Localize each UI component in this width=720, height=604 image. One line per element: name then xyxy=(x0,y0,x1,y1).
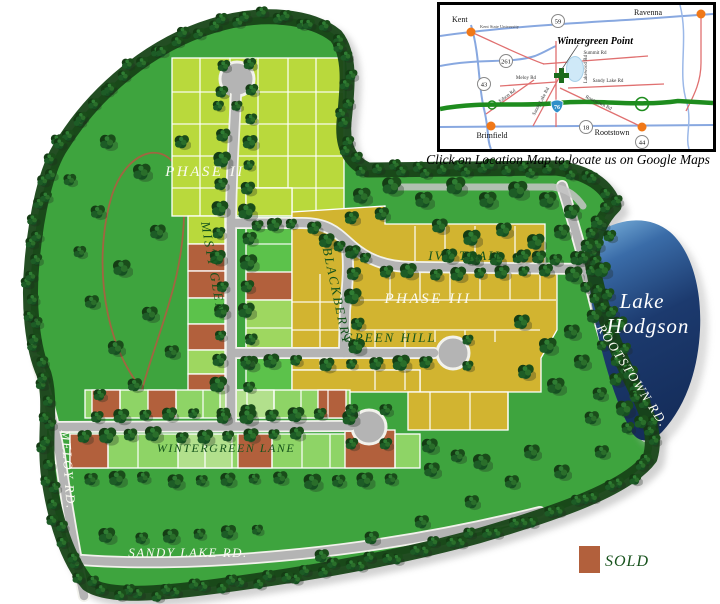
phase-iii-label: PHASE III xyxy=(383,291,471,307)
road-label-meloy: Meloy Rd xyxy=(516,76,537,81)
inset-title: Wintergreen Point xyxy=(557,36,634,47)
street-label-ivy-trail: IVY TRAIL xyxy=(427,248,503,263)
phase-ii-label: PHASE II xyxy=(164,164,245,180)
route-shield-44: 44 xyxy=(636,136,649,149)
svg-text:44: 44 xyxy=(639,140,646,147)
site-plan-page: PHASE II PHASE III MISTY GLEN BLACKBERRY… xyxy=(0,0,720,604)
interstate-76: 76 xyxy=(440,98,713,114)
city-label-brimfield: Brimfield xyxy=(476,131,507,140)
route-shield-261: 261 xyxy=(500,55,513,68)
city-dot-kent xyxy=(467,28,476,37)
city-label-kent: Kent xyxy=(452,15,468,24)
location-map-svg: 76 59 261 43 18 44 Kent Ravenna Br xyxy=(440,5,713,149)
city-label-ravenna: Ravenna xyxy=(634,8,662,17)
city-label-rootstown: Rootstown xyxy=(595,128,630,137)
sold-legend-label: SOLD xyxy=(605,553,649,570)
road-label-edson: Edson Rd xyxy=(498,88,517,104)
inset-lake xyxy=(567,57,584,82)
city-dot-rootstown xyxy=(638,123,647,132)
road-label-sandy-lake-e: Sandy Lake Rd xyxy=(593,79,624,84)
route-shield-43: 43 xyxy=(478,78,491,91)
river xyxy=(680,5,689,149)
sold-legend: SOLD xyxy=(579,546,649,573)
city-dot-ravenna xyxy=(697,10,706,19)
lake-label-line2: Hodgson xyxy=(606,314,690,338)
ksu-label: Kent State University xyxy=(480,24,520,29)
location-map-inset[interactable]: 76 59 261 43 18 44 Kent Ravenna Br xyxy=(437,2,716,152)
location-map-caption: Click on Location Map to locate us on Go… xyxy=(418,152,718,168)
svg-text:43: 43 xyxy=(481,82,488,89)
route-shield-59: 59 xyxy=(552,15,565,28)
svg-text:261: 261 xyxy=(501,59,511,66)
lake-label-line1: Lake xyxy=(619,289,665,313)
route-shield-18: 18 xyxy=(580,121,593,134)
street-label-green-hill: GREEN HILL xyxy=(343,330,436,345)
street-label-sandy-lake-rd: SANDY LAKE RD. xyxy=(128,545,248,560)
road-label-lakewood: Lakewood Rd xyxy=(584,54,589,83)
sold-legend-swatch xyxy=(579,546,600,573)
city-dot-brimfield xyxy=(487,122,496,131)
i76-number: 76 xyxy=(554,105,560,111)
svg-text:59: 59 xyxy=(555,19,562,26)
street-label-wintergreen-lane: WINTERGREEN LANE xyxy=(157,441,295,455)
svg-text:18: 18 xyxy=(583,125,590,132)
